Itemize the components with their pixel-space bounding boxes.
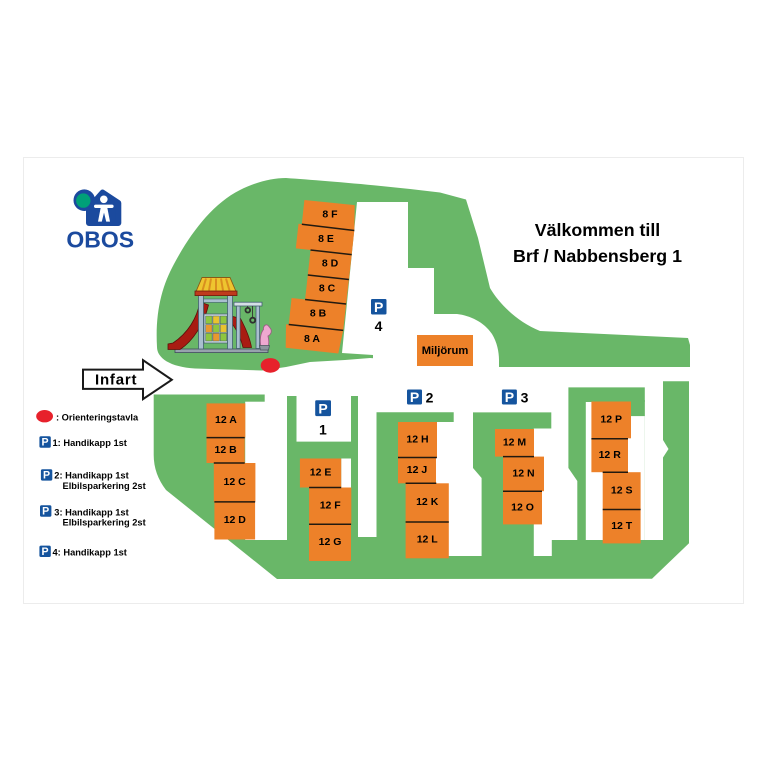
svg-text:12 M: 12 M xyxy=(503,436,527,448)
svg-text:Miljörum: Miljörum xyxy=(422,345,469,357)
svg-text:12 O: 12 O xyxy=(511,501,534,513)
svg-text:4: Handikapp 1st: 4: Handikapp 1st xyxy=(53,547,127,557)
svg-text:1: Handikapp 1st: 1: Handikapp 1st xyxy=(53,438,127,448)
svg-text:8 F: 8 F xyxy=(322,209,338,221)
svg-text:12 H: 12 H xyxy=(406,433,428,445)
svg-text:Brf / Nabbensberg 1: Brf / Nabbensberg 1 xyxy=(513,246,682,266)
svg-text:12 K: 12 K xyxy=(416,496,439,508)
svg-text:3: Handikapp 1st: 3: Handikapp 1st xyxy=(54,508,128,518)
svg-text:Elbilsparkering 2st: Elbilsparkering 2st xyxy=(63,517,146,527)
svg-text:8 D: 8 D xyxy=(322,258,339,270)
svg-text:4: 4 xyxy=(375,318,383,334)
svg-text:2: 2 xyxy=(426,390,434,406)
svg-text:Infart: Infart xyxy=(95,372,137,389)
svg-text:OBOS: OBOS xyxy=(66,226,134,252)
svg-text:12 R: 12 R xyxy=(599,449,622,461)
svg-text:12 A: 12 A xyxy=(215,414,237,426)
svg-text:: Orienteringstavla: : Orienteringstavla xyxy=(56,413,139,423)
svg-text:12 B: 12 B xyxy=(215,444,238,456)
svg-text:8 E: 8 E xyxy=(318,233,334,245)
svg-text:8 C: 8 C xyxy=(319,283,336,295)
svg-text:P: P xyxy=(410,389,419,405)
svg-text:1: 1 xyxy=(319,422,327,438)
svg-text:12 C: 12 C xyxy=(224,476,247,488)
svg-text:12 G: 12 G xyxy=(319,536,342,548)
svg-text:P: P xyxy=(374,299,383,315)
svg-text:P: P xyxy=(42,437,49,449)
svg-text:12 J: 12 J xyxy=(407,464,428,476)
svg-text:P: P xyxy=(42,546,49,558)
svg-text:Välkommen till: Välkommen till xyxy=(535,220,661,240)
svg-text:12 N: 12 N xyxy=(512,467,534,479)
svg-text:3: 3 xyxy=(521,390,529,406)
svg-text:P: P xyxy=(42,506,49,518)
svg-text:12 F: 12 F xyxy=(320,500,342,512)
svg-text:8 A: 8 A xyxy=(304,333,320,345)
svg-text:P: P xyxy=(43,470,50,482)
svg-text:8 B: 8 B xyxy=(310,308,327,320)
svg-text:12 T: 12 T xyxy=(611,520,633,532)
svg-text:12 E: 12 E xyxy=(310,467,332,479)
svg-text:Elbilsparkering 2st: Elbilsparkering 2st xyxy=(63,481,146,491)
svg-text:P: P xyxy=(318,401,327,417)
svg-text:2: Handikapp 1st: 2: Handikapp 1st xyxy=(54,470,128,480)
svg-text:12 D: 12 D xyxy=(224,514,247,526)
svg-text:12 P: 12 P xyxy=(600,413,622,425)
svg-text:P: P xyxy=(505,389,514,405)
svg-text:12 S: 12 S xyxy=(611,484,633,496)
svg-text:12 L: 12 L xyxy=(417,534,439,546)
